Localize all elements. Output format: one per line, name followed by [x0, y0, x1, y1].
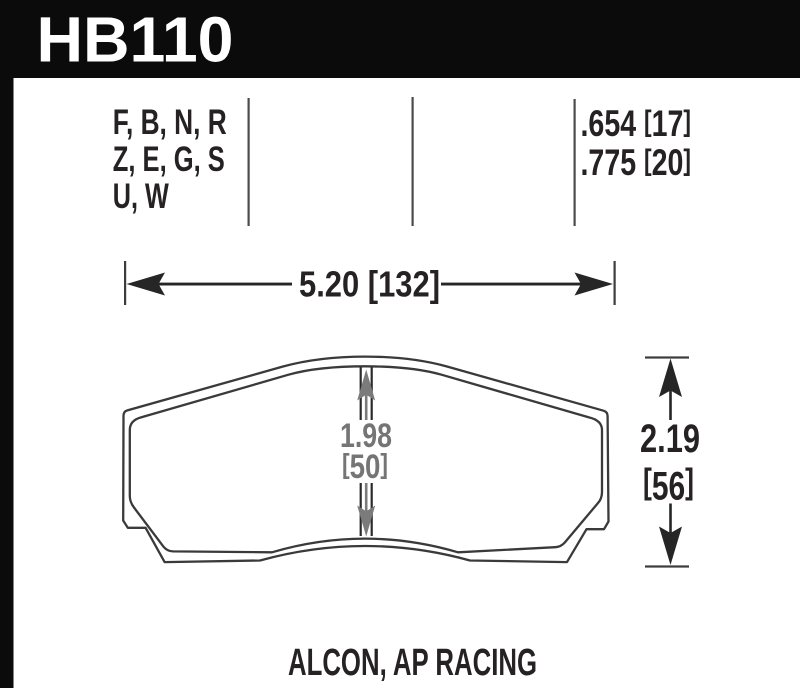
svg-text:.775 [20]: .775 [20] [581, 142, 692, 183]
svg-text:F, B, N, R: F, B, N, R [113, 103, 227, 142]
svg-text:HB110: HB110 [37, 4, 234, 76]
svg-text:.654 [17]: .654 [17] [581, 103, 692, 144]
svg-text:ALCON, AP RACING: ALCON, AP RACING [288, 642, 537, 684]
svg-text:2.19: 2.19 [640, 417, 700, 461]
svg-text:5.20 [132]: 5.20 [132] [299, 264, 440, 305]
svg-text:Z, E, G, S: Z, E, G, S [113, 140, 225, 179]
svg-text:U, W: U, W [113, 177, 169, 216]
